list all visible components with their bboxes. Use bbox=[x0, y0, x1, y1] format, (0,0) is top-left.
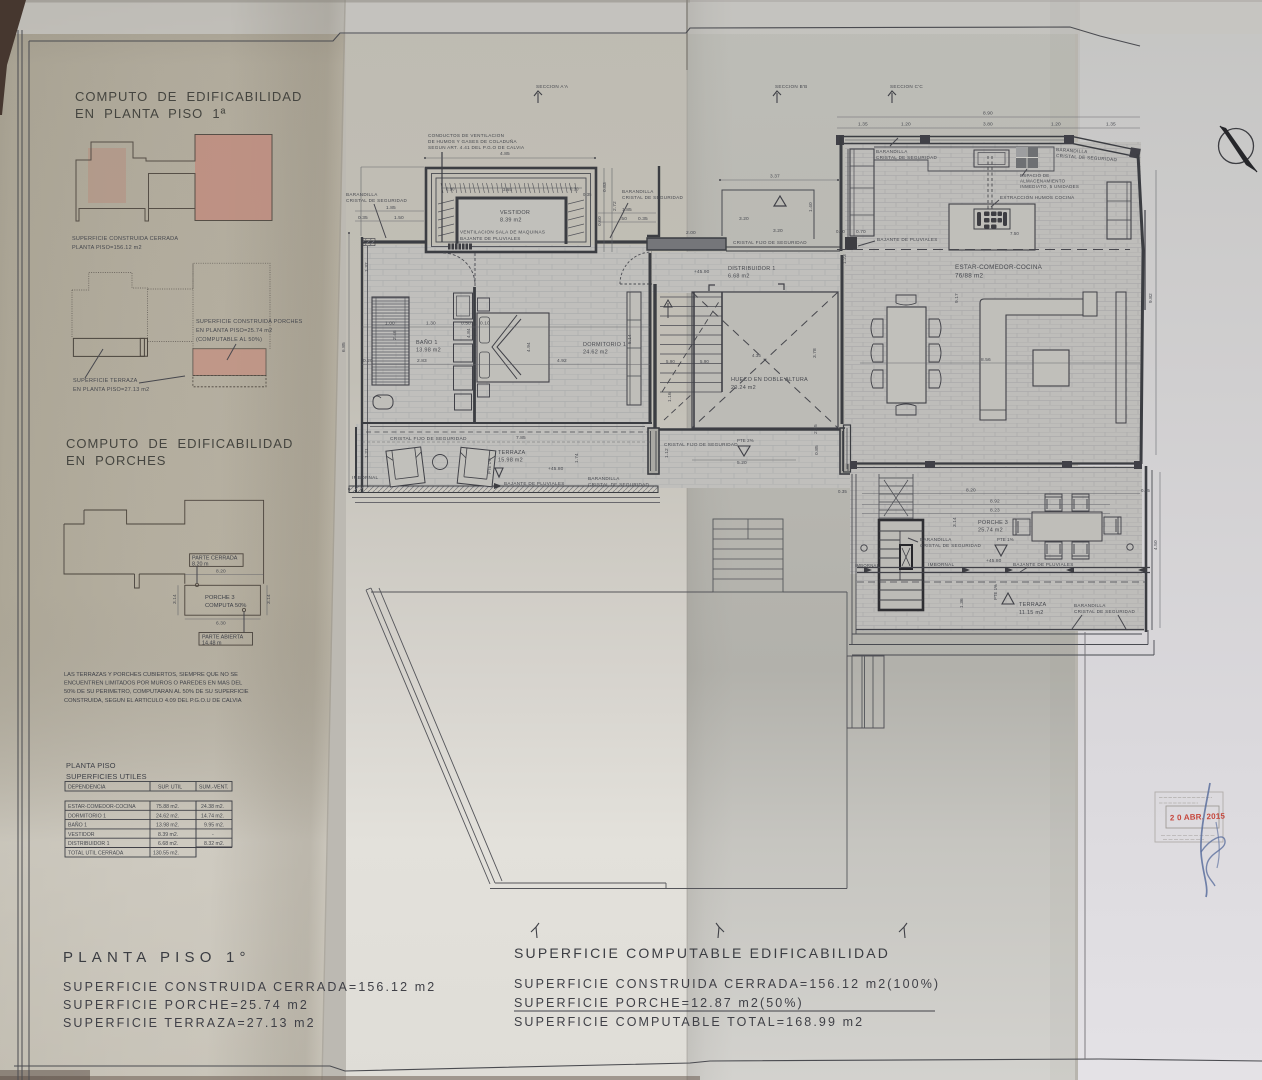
svg-text:6.68 m2: 6.68 m2 bbox=[728, 274, 750, 280]
svg-text:0.35: 0.35 bbox=[583, 192, 592, 197]
svg-text:CRISTAL DE SEGURIDAD: CRISTAL DE SEGURIDAD bbox=[346, 198, 408, 203]
svg-text:8.20: 8.20 bbox=[216, 569, 226, 575]
svg-text:PTE 1%: PTE 1% bbox=[993, 584, 998, 600]
svg-text:4.35: 4.35 bbox=[752, 353, 761, 358]
svg-text:5.90: 5.90 bbox=[700, 359, 709, 364]
svg-text:PTE 1%: PTE 1% bbox=[997, 537, 1014, 542]
svg-text:6.85: 6.85 bbox=[341, 342, 347, 352]
svg-text:ESTAR-COMEDOR-COCINA: ESTAR-COMEDOR-COCINA bbox=[68, 804, 136, 810]
svg-text:76/88 m2: 76/88 m2 bbox=[955, 273, 984, 280]
svg-text:IMBORNAL: IMBORNAL bbox=[928, 562, 955, 567]
svg-text:9.17: 9.17 bbox=[954, 293, 960, 303]
svg-text:0.10: 0.10 bbox=[480, 321, 490, 327]
svg-text:TOTAL UTIL CERRADA: TOTAL UTIL CERRADA bbox=[68, 851, 124, 857]
svg-text:1.20: 1.20 bbox=[1051, 122, 1061, 128]
svg-text:HUECO EN DOBLE ALTURA: HUECO EN DOBLE ALTURA bbox=[731, 377, 808, 383]
svg-text:+45.80: +45.80 bbox=[548, 466, 564, 472]
svg-text:4.85: 4.85 bbox=[500, 151, 510, 157]
svg-text:PORCHE 3: PORCHE 3 bbox=[205, 595, 235, 601]
svg-text:CRISTAL FIJO DE SEGURIDAD: CRISTAL FIJO DE SEGURIDAD bbox=[390, 436, 467, 442]
svg-text:24.62 m2: 24.62 m2 bbox=[583, 350, 608, 356]
svg-text:BARANDILLA: BARANDILLA bbox=[622, 189, 654, 194]
svg-text:TERRAZA: TERRAZA bbox=[1019, 602, 1047, 608]
svg-text:1.50: 1.50 bbox=[394, 215, 404, 221]
svg-text:1.74: 1.74 bbox=[574, 453, 580, 463]
svg-text:SUPERFICIE CONSTRUIDA PORCHES: SUPERFICIE CONSTRUIDA PORCHES bbox=[196, 319, 303, 325]
svg-text:3.20: 3.20 bbox=[739, 216, 749, 222]
svg-text:3.14: 3.14 bbox=[266, 594, 272, 604]
svg-text:0.60: 0.60 bbox=[597, 216, 603, 226]
svg-text:-: - bbox=[212, 832, 214, 838]
svg-text:0.35: 0.35 bbox=[638, 216, 648, 222]
svg-text:1.16: 1.16 bbox=[667, 392, 673, 402]
svg-text:DORMITORIO 1: DORMITORIO 1 bbox=[583, 342, 626, 348]
svg-text:PLANTA PISO=156.12 m2: PLANTA PISO=156.12 m2 bbox=[72, 245, 142, 251]
svg-text:24.38 m2.: 24.38 m2. bbox=[201, 804, 224, 810]
svg-text:CONSTRUIDA, SEGUN EL ARTICULO: CONSTRUIDA, SEGUN EL ARTICULO 4.09 DEL P… bbox=[64, 698, 242, 704]
svg-text:SUPERFICIE COMPUTABLE TOTAL=16: SUPERFICIE COMPUTABLE TOTAL=168.99 m2 bbox=[514, 1015, 864, 1029]
svg-text:BAÑO 1: BAÑO 1 bbox=[68, 822, 87, 829]
svg-text:11.15 m2: 11.15 m2 bbox=[1019, 610, 1044, 616]
svg-text:0.85: 0.85 bbox=[814, 445, 820, 455]
svg-text:BAJANTE DE PLUVIALES: BAJANTE DE PLUVIALES bbox=[1013, 562, 1074, 567]
svg-text:COMPUTO DE EDIFICABILIDAD: COMPUTO DE EDIFICABILIDAD bbox=[75, 89, 302, 104]
svg-text:8.20: 8.20 bbox=[966, 488, 976, 494]
svg-text:4.50: 4.50 bbox=[1153, 540, 1159, 550]
svg-text:9.95 m2.: 9.95 m2. bbox=[204, 823, 224, 829]
svg-text:SUPERFICIE CONSTRUIDA CERRADA=: SUPERFICIE CONSTRUIDA CERRADA=156.12 m2 bbox=[63, 980, 436, 994]
svg-text:SECCION C'C: SECCION C'C bbox=[890, 84, 923, 89]
svg-text:2.72: 2.72 bbox=[612, 201, 618, 211]
svg-text:CRISTAL DE SEGURIDAD: CRISTAL DE SEGURIDAD bbox=[876, 155, 938, 160]
svg-text:0.50: 0.50 bbox=[461, 321, 471, 327]
svg-text:20.24 m2: 20.24 m2 bbox=[731, 385, 756, 391]
svg-text:VENTILACION SALA DE MAQUINAS: VENTILACION SALA DE MAQUINAS bbox=[460, 230, 545, 235]
svg-text:8.39 m2.: 8.39 m2. bbox=[158, 832, 178, 838]
svg-text:1.12: 1.12 bbox=[664, 448, 670, 458]
svg-text:0.30: 0.30 bbox=[570, 187, 579, 192]
svg-text:+45.90: +45.90 bbox=[694, 269, 710, 275]
svg-text:1.20: 1.20 bbox=[901, 122, 911, 128]
svg-text:0.70: 0.70 bbox=[856, 229, 866, 235]
svg-text:COMPUTO DE EDIFICABILIDAD: COMPUTO DE EDIFICABILIDAD bbox=[66, 436, 293, 451]
svg-text:0.20: 0.20 bbox=[836, 229, 845, 234]
svg-text:SECCION A'A: SECCION A'A bbox=[536, 84, 569, 89]
svg-text:DISTRIBUIDOR 1: DISTRIBUIDOR 1 bbox=[728, 266, 776, 272]
svg-text:CRISTAL DE SEGURIDAD: CRISTAL DE SEGURIDAD bbox=[588, 482, 650, 487]
svg-text:13.98 m2.: 13.98 m2. bbox=[156, 823, 179, 829]
svg-text:EN PLANTA PISO=25.74 m2: EN PLANTA PISO=25.74 m2 bbox=[196, 328, 272, 334]
svg-text:2.35: 2.35 bbox=[813, 424, 819, 434]
svg-text:8.23: 8.23 bbox=[990, 508, 1000, 514]
svg-text:TERRAZA: TERRAZA bbox=[498, 450, 526, 456]
svg-text:1.35: 1.35 bbox=[858, 122, 868, 128]
svg-text:SUPERFICIES UTILES: SUPERFICIES UTILES bbox=[66, 772, 147, 781]
svg-text:BARANDILLA: BARANDILLA bbox=[1074, 603, 1106, 608]
svg-text:0.83: 0.83 bbox=[602, 182, 608, 192]
svg-text:SUP. UTIL: SUP. UTIL bbox=[158, 785, 182, 791]
svg-text:6.68 m2.: 6.68 m2. bbox=[158, 841, 178, 847]
svg-text:BARANDILLA: BARANDILLA bbox=[920, 537, 952, 542]
svg-text:3.80: 3.80 bbox=[983, 122, 993, 128]
svg-text:EN PLANTA PISO 1ª: EN PLANTA PISO 1ª bbox=[75, 106, 226, 121]
svg-text:3.37: 3.37 bbox=[770, 174, 780, 180]
svg-text:SUPERFICIE COMPUTABLE EDIFICAB: SUPERFICIE COMPUTABLE EDIFICABILIDAD bbox=[514, 945, 890, 961]
svg-text:9.82: 9.82 bbox=[1148, 293, 1154, 303]
svg-text:6.30: 6.30 bbox=[216, 621, 226, 627]
svg-text:DISTRIBUIDOR 1: DISTRIBUIDOR 1 bbox=[68, 841, 110, 847]
svg-text:15.98 m2: 15.98 m2 bbox=[498, 458, 523, 464]
svg-text:25.74 m2: 25.74 m2 bbox=[978, 528, 1003, 534]
svg-text:1.40: 1.40 bbox=[808, 202, 814, 212]
svg-text:PLANTA PISO 1°: PLANTA PISO 1° bbox=[63, 949, 251, 966]
svg-text:1.37: 1.37 bbox=[364, 262, 370, 272]
svg-text:50% DE SU PERIMETRO, COMPUTARA: 50% DE SU PERIMETRO, COMPUTARAN AL 50% D… bbox=[64, 689, 249, 695]
svg-text:COMPUTA 50%: COMPUTA 50% bbox=[205, 603, 246, 609]
svg-text:CRISTAL DE SEGURIDAD: CRISTAL DE SEGURIDAD bbox=[1074, 609, 1136, 614]
svg-text:0.35: 0.35 bbox=[358, 215, 368, 221]
svg-text:EXTRACCION HUMOS COCINA: EXTRACCION HUMOS COCINA bbox=[1000, 195, 1075, 200]
svg-text:4.84: 4.84 bbox=[466, 328, 472, 338]
svg-text:IMBORNAL: IMBORNAL bbox=[855, 563, 880, 568]
svg-text:CRISTAL DE SEGURIDAD: CRISTAL DE SEGURIDAD bbox=[920, 543, 982, 548]
svg-text:24.62 m2.: 24.62 m2. bbox=[156, 813, 179, 819]
svg-text:LAS TERRAZAS Y PORCHES CUBIERT: LAS TERRAZAS Y PORCHES CUBIERTOS, SIEMPR… bbox=[64, 672, 238, 678]
svg-text:BAÑO 1: BAÑO 1 bbox=[416, 339, 438, 346]
svg-text:SECCION B'B: SECCION B'B bbox=[775, 84, 808, 89]
svg-text:INMEDIATO, 5 UNIDADES: INMEDIATO, 5 UNIDADES bbox=[1020, 184, 1079, 189]
svg-text:BAJANTE DE PLUVIALES: BAJANTE DE PLUVIALES bbox=[877, 237, 938, 242]
svg-text:5.20: 5.20 bbox=[737, 460, 747, 466]
svg-text:CONDUCTOS DE VENTILACION: CONDUCTOS DE VENTILACION bbox=[428, 133, 504, 138]
svg-text:3.14: 3.14 bbox=[952, 517, 958, 527]
svg-text:1.36: 1.36 bbox=[959, 598, 965, 608]
svg-text:14.74 m2.: 14.74 m2. bbox=[201, 813, 224, 819]
svg-text:1.85: 1.85 bbox=[386, 205, 396, 211]
svg-text:DEPENDENCIA: DEPENDENCIA bbox=[68, 785, 106, 791]
svg-text:1.30: 1.30 bbox=[426, 321, 436, 327]
svg-text:1.00: 1.00 bbox=[385, 321, 395, 327]
svg-text:BARANDILLA: BARANDILLA bbox=[588, 476, 620, 481]
svg-text:DORMITORIO 1: DORMITORIO 1 bbox=[68, 813, 106, 819]
svg-text:SUPERFICIE TERRAZA=27.13 m2: SUPERFICIE TERRAZA=27.13 m2 bbox=[63, 1016, 316, 1030]
svg-text:SUPERFICIE CONSTRUIDA CERRADA=: SUPERFICIE CONSTRUIDA CERRADA=156.12 m2(… bbox=[514, 977, 940, 991]
svg-text:BARANDILLA: BARANDILLA bbox=[876, 149, 908, 154]
svg-text:VESTIDOR: VESTIDOR bbox=[68, 832, 95, 838]
svg-text:EN PORCHES: EN PORCHES bbox=[66, 453, 166, 468]
svg-text:(COMPUTABLE AL 50%): (COMPUTABLE AL 50%) bbox=[196, 337, 262, 343]
svg-text:0.20: 0.20 bbox=[363, 358, 373, 364]
svg-text:8.90: 8.90 bbox=[983, 111, 993, 117]
svg-text:0.35: 0.35 bbox=[838, 489, 847, 494]
svg-text:3.14: 3.14 bbox=[172, 594, 178, 604]
svg-text:130.55 m2.: 130.55 m2. bbox=[153, 851, 179, 857]
svg-text:EN PLANTA PISO=27.13 m2: EN PLANTA PISO=27.13 m2 bbox=[73, 387, 149, 393]
svg-text:5.90: 5.90 bbox=[666, 359, 675, 364]
svg-text:IMBORNAL: IMBORNAL bbox=[352, 475, 379, 480]
svg-text:PTE 2%: PTE 2% bbox=[737, 438, 754, 443]
svg-text:ENCUENTREN LIMITADOS POR MUROS: ENCUENTREN LIMITADOS POR MUROS O PAREDES… bbox=[64, 681, 242, 687]
svg-text:2.83: 2.83 bbox=[417, 358, 427, 364]
svg-text:3.65: 3.65 bbox=[503, 187, 512, 192]
svg-text:BAJANTE DE PLUVIALES: BAJANTE DE PLUVIALES bbox=[460, 236, 521, 241]
svg-text:3.20: 3.20 bbox=[773, 228, 783, 234]
svg-text:PLANTA PISO: PLANTA PISO bbox=[66, 761, 116, 770]
svg-text:SUPERFICIE PORCHE=12.87 m2(50%: SUPERFICIE PORCHE=12.87 m2(50%) bbox=[514, 996, 804, 1010]
svg-text:3.78: 3.78 bbox=[812, 348, 818, 358]
svg-text:8.39 m2: 8.39 m2 bbox=[500, 218, 522, 224]
svg-text:14.48 m: 14.48 m bbox=[202, 641, 222, 647]
svg-text:BARANDILLA: BARANDILLA bbox=[346, 192, 378, 197]
svg-text:1.21: 1.21 bbox=[364, 448, 370, 458]
svg-text:4.94: 4.94 bbox=[526, 342, 532, 352]
svg-text:1.23: 1.23 bbox=[842, 254, 848, 264]
svg-text:4.92: 4.92 bbox=[557, 358, 567, 364]
svg-text:0.90: 0.90 bbox=[446, 187, 455, 192]
svg-text:0.35: 0.35 bbox=[1141, 488, 1150, 493]
svg-text:13.98 m2: 13.98 m2 bbox=[416, 348, 441, 354]
svg-text:ESTAR-COMEDOR-COCINA: ESTAR-COMEDOR-COCINA bbox=[955, 264, 1043, 271]
svg-text:7.85: 7.85 bbox=[516, 435, 526, 441]
svg-text:DE HUMOS Y GASES DE COLADUÑA: DE HUMOS Y GASES DE COLADUÑA bbox=[428, 138, 518, 144]
svg-text:VESTIDOR: VESTIDOR bbox=[500, 210, 530, 216]
svg-text:SEGUN ART. 4.41 DEL P.G.O DE C: SEGUN ART. 4.41 DEL P.G.O DE CALVIA bbox=[428, 145, 525, 150]
svg-text:+45.80: +45.80 bbox=[986, 558, 1002, 564]
svg-text:CRISTAL FIJO DE SEGURIDAD: CRISTAL FIJO DE SEGURIDAD bbox=[664, 442, 738, 447]
svg-text:75.88 m2.: 75.88 m2. bbox=[156, 804, 179, 810]
svg-text:SUPERFICIE TERRAZA: SUPERFICIE TERRAZA bbox=[73, 378, 138, 384]
svg-text:8.32 m2.: 8.32 m2. bbox=[204, 841, 224, 847]
svg-text:ALMACENAMIENTO: ALMACENAMIENTO bbox=[1020, 179, 1066, 184]
svg-text:SUPERFICIE CONSTRUIDA CERRADA: SUPERFICIE CONSTRUIDA CERRADA bbox=[72, 236, 178, 242]
svg-text:PORCHE 3: PORCHE 3 bbox=[978, 520, 1008, 526]
svg-text:CRISTAL DE SEGURIDAD: CRISTAL DE SEGURIDAD bbox=[622, 195, 684, 200]
svg-text:2.00: 2.00 bbox=[686, 230, 696, 236]
svg-text:BAJANTE DE PLUVIALES: BAJANTE DE PLUVIALES bbox=[504, 481, 565, 486]
svg-text:2.46: 2.46 bbox=[392, 330, 398, 340]
svg-text:5.14: 5.14 bbox=[627, 334, 633, 344]
svg-text:SUPERFICIE PORCHE=25.74 m2: SUPERFICIE PORCHE=25.74 m2 bbox=[63, 998, 309, 1012]
svg-text:SUM.-VENT.: SUM.-VENT. bbox=[199, 785, 228, 791]
svg-text:CRISTAL FIJO DE SEGURIDAD: CRISTAL FIJO DE SEGURIDAD bbox=[733, 240, 807, 245]
svg-text:ESPACIO DE: ESPACIO DE bbox=[1020, 173, 1050, 178]
svg-text:PTE 1%: PTE 1% bbox=[487, 458, 492, 474]
svg-text:8.56: 8.56 bbox=[981, 357, 991, 363]
svg-text:7.50: 7.50 bbox=[1010, 231, 1019, 236]
svg-text:1.35: 1.35 bbox=[1106, 122, 1116, 128]
svg-text:8.92: 8.92 bbox=[990, 499, 1000, 505]
svg-text:8.20 m: 8.20 m bbox=[192, 562, 209, 568]
